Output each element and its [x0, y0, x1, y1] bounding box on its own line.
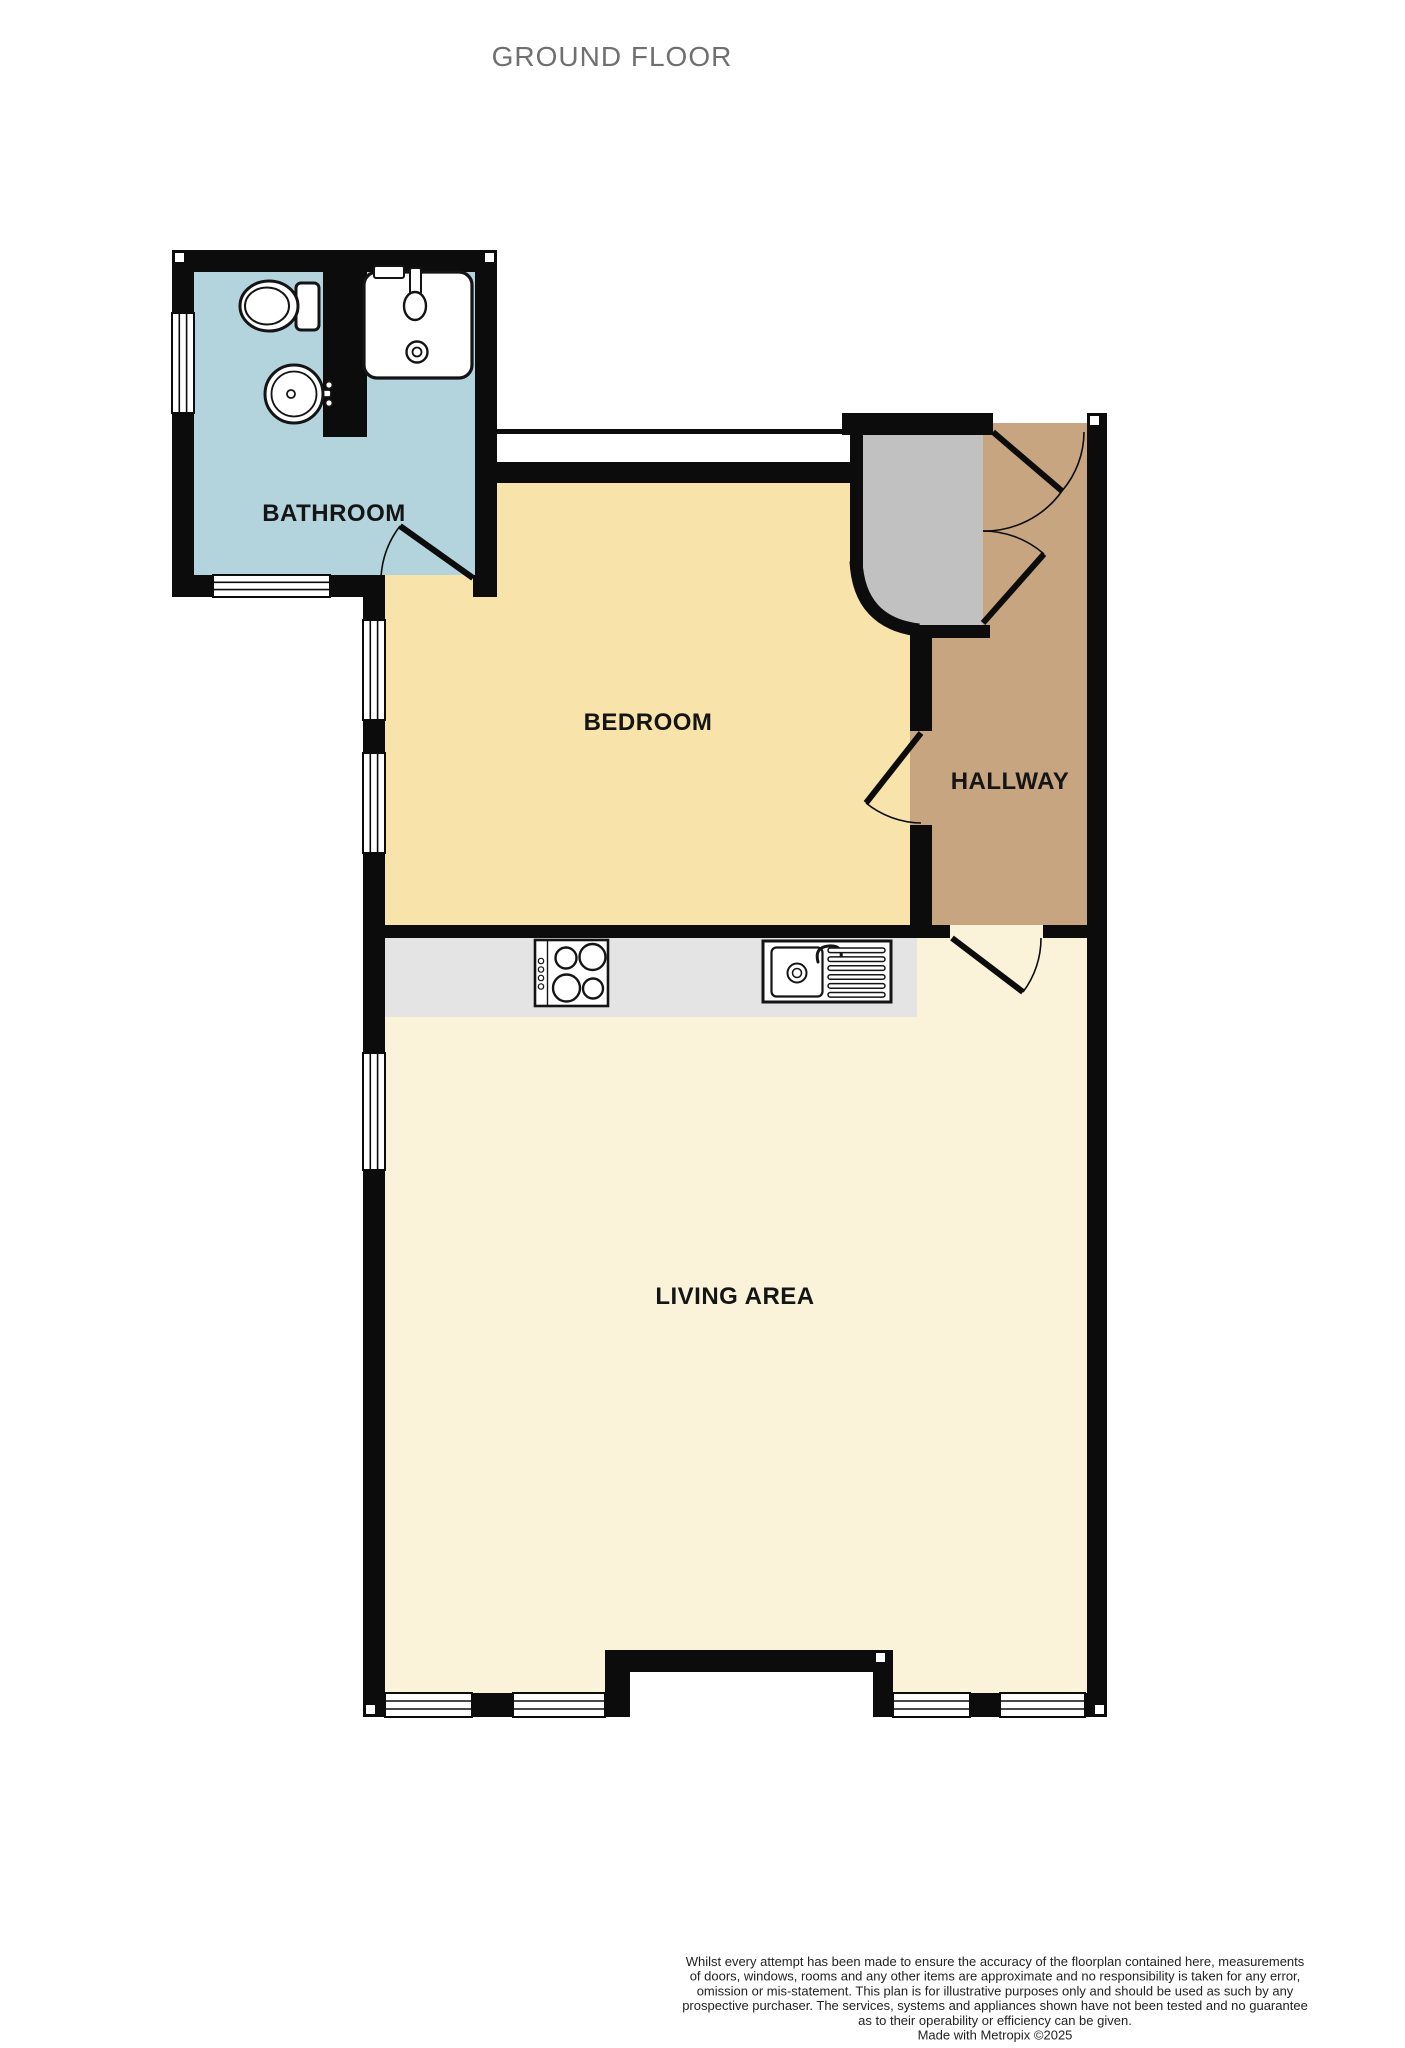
disclaimer-line: of doors, windows, rooms and any other i… — [690, 1969, 1301, 1984]
disclaimer-line: prospective purchaser. The services, sys… — [682, 1998, 1308, 2013]
window-bathroom-bottom — [213, 575, 330, 597]
made-with-metropix: Made with Metropix ©2025 — [918, 2028, 1073, 2043]
corner-notch — [1095, 1705, 1104, 1714]
disclaimer: Whilst every attempt has been made to en… — [682, 1954, 1308, 2043]
window-bedroom-left-2 — [363, 753, 385, 853]
corner-notch — [366, 1705, 375, 1714]
wall-bedroom-bottom — [363, 925, 932, 938]
entrance-threshold — [993, 423, 1087, 437]
window-bathroom-left — [172, 313, 194, 413]
wall-vestibule-left — [850, 435, 863, 566]
toilet-icon — [240, 281, 319, 331]
washbasin-icon — [364, 266, 472, 378]
disclaimer-line: omission or mis-statement. This plan is … — [697, 1983, 1294, 1998]
room-floors — [194, 272, 1087, 1693]
wall-bedroom-hallway-upper — [910, 630, 932, 731]
corner-notch — [1090, 416, 1099, 425]
living-area-label: LIVING AREA — [655, 1283, 814, 1310]
bathroom-doorway — [377, 575, 473, 597]
wall-bottom-recessed — [605, 1650, 893, 1672]
entrance-cupboard-floor — [863, 435, 983, 625]
window-living-left — [363, 1053, 385, 1170]
window-bedroom-left-1 — [363, 620, 385, 720]
bathroom-label: BATHROOM — [262, 500, 406, 527]
floorplan-drawing: GROUND FLOOR BATHROOM BEDROOM HALLWAY LI… — [0, 0, 1405, 2048]
hallway-label: HALLWAY — [951, 768, 1070, 795]
corner-notch — [175, 253, 184, 262]
wall-bathroom-right — [475, 250, 497, 597]
wall-vestibule-top — [842, 413, 993, 435]
wall-hallway-bottom-left — [930, 925, 950, 938]
disclaimer-line: as to their operability or efficiency ca… — [858, 2013, 1132, 2028]
disclaimer-line: Whilst every attempt has been made to en… — [686, 1954, 1305, 1969]
page-title: GROUND FLOOR — [492, 41, 733, 72]
window-living-bottom-1 — [385, 1693, 472, 1717]
hob-icon — [535, 940, 608, 1006]
corner-notch — [876, 1653, 885, 1662]
living-doorway — [950, 925, 1043, 938]
wall-right-exterior — [1087, 413, 1107, 1717]
wall-bedroom-hallway-lower — [910, 825, 932, 938]
wall-bathroom-left — [172, 250, 194, 597]
window-living-bottom-4 — [1000, 1693, 1085, 1717]
wall-bathroom-top — [172, 250, 497, 272]
wall-bedroom-top — [475, 462, 862, 483]
living-area-floor — [385, 938, 1087, 1693]
window-living-bottom-3 — [893, 1693, 970, 1717]
bedroom-label: BEDROOM — [584, 709, 713, 736]
window-living-bottom-2 — [513, 1693, 605, 1717]
floorplan-page: GROUND FLOOR BATHROOM BEDROOM HALLWAY LI… — [0, 0, 1405, 2048]
corner-notch — [485, 253, 494, 262]
wall-bathroom-divider — [323, 272, 367, 437]
boundary-line-top — [475, 429, 852, 434]
wall-hallway-bottom-right — [1043, 925, 1087, 938]
sink-drainer-icon — [763, 941, 891, 1002]
